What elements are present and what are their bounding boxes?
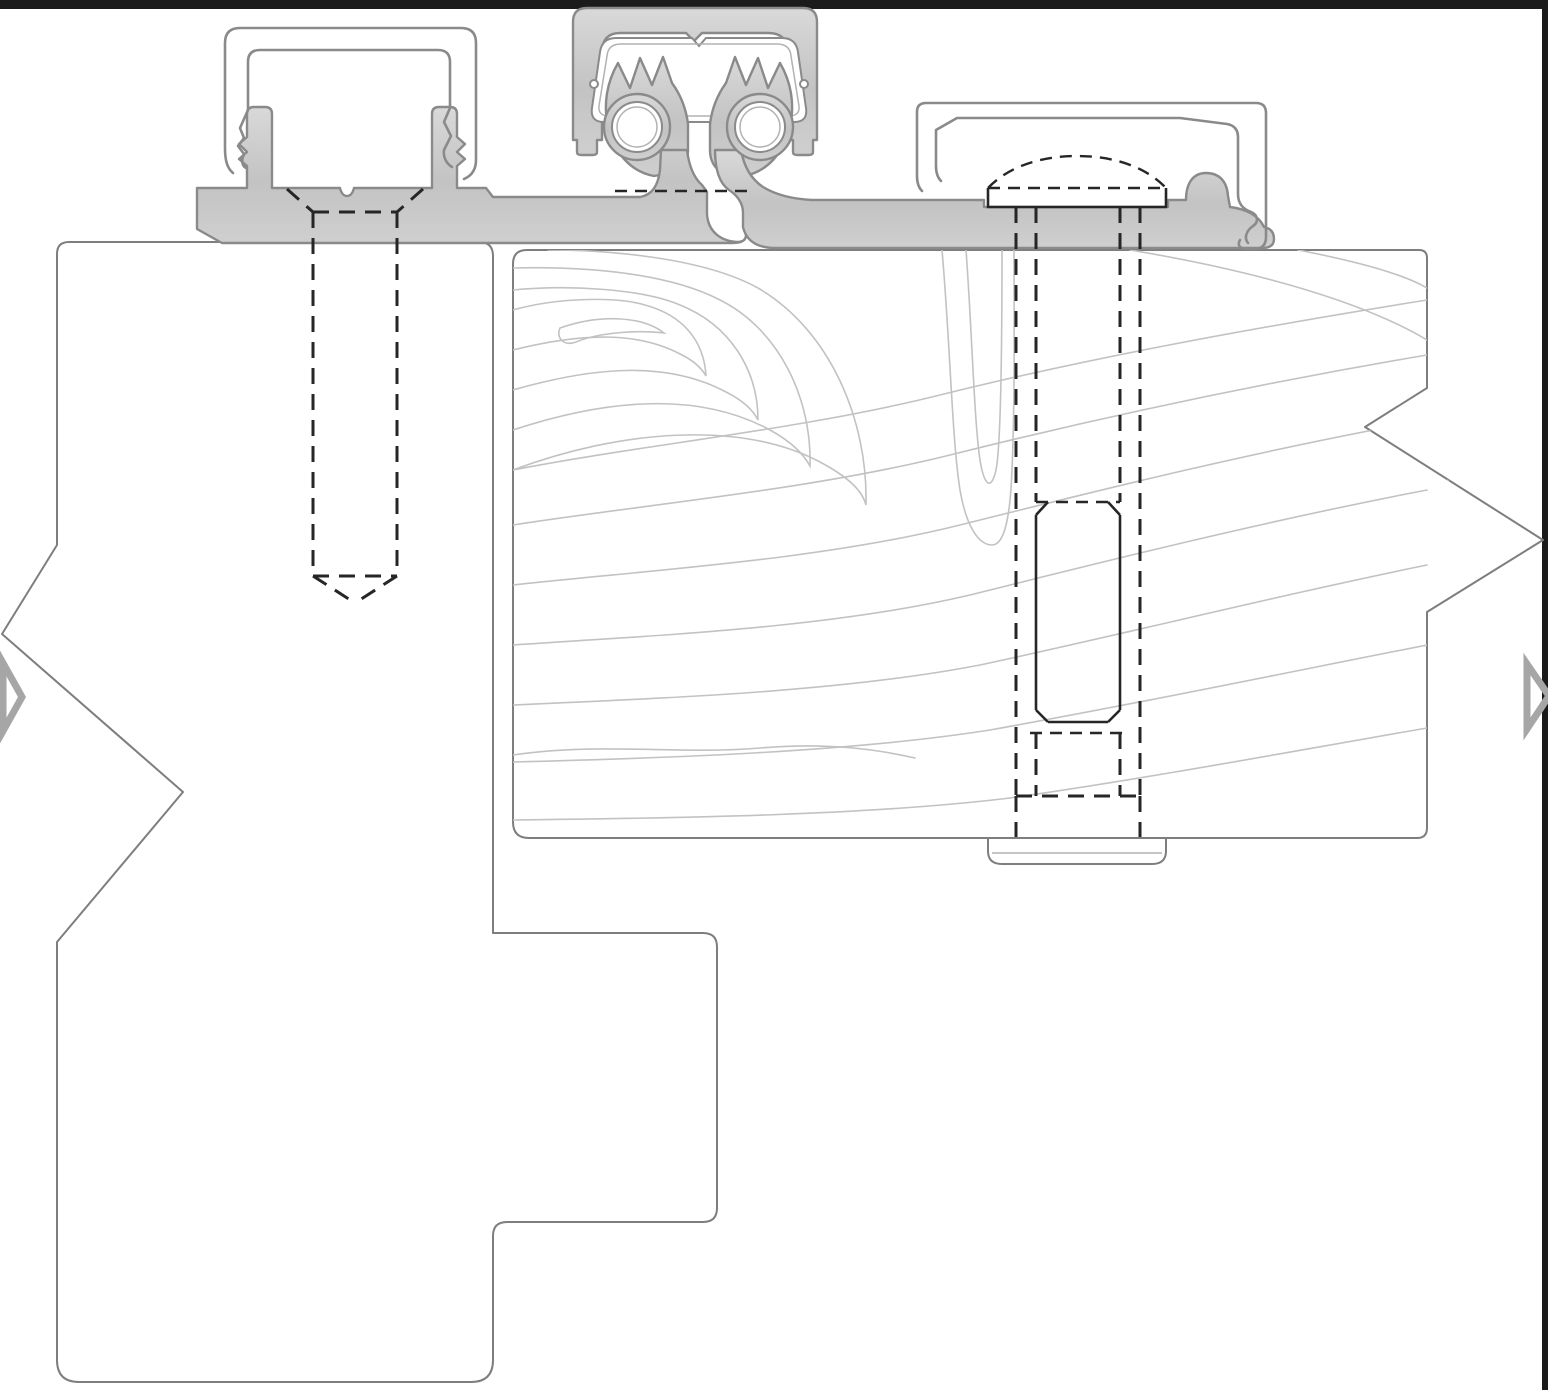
bolt-head-washer xyxy=(988,188,1166,207)
cap-retainer-nub xyxy=(800,80,808,88)
hinge-door-leaf xyxy=(715,150,1274,248)
cap-retainer-nub xyxy=(590,80,598,88)
bolt-base-cap xyxy=(988,838,1166,864)
bolt-dome-head-hidden xyxy=(988,156,1166,188)
pin-bore-right xyxy=(735,102,785,152)
drawing-canvas xyxy=(0,0,1548,1390)
door-panel xyxy=(513,250,1543,838)
left-break-arrow xyxy=(3,663,22,731)
pin-bore-left xyxy=(612,102,662,152)
hinge-section-drawing xyxy=(0,0,1548,1390)
wood-grain-line xyxy=(1448,366,1541,480)
